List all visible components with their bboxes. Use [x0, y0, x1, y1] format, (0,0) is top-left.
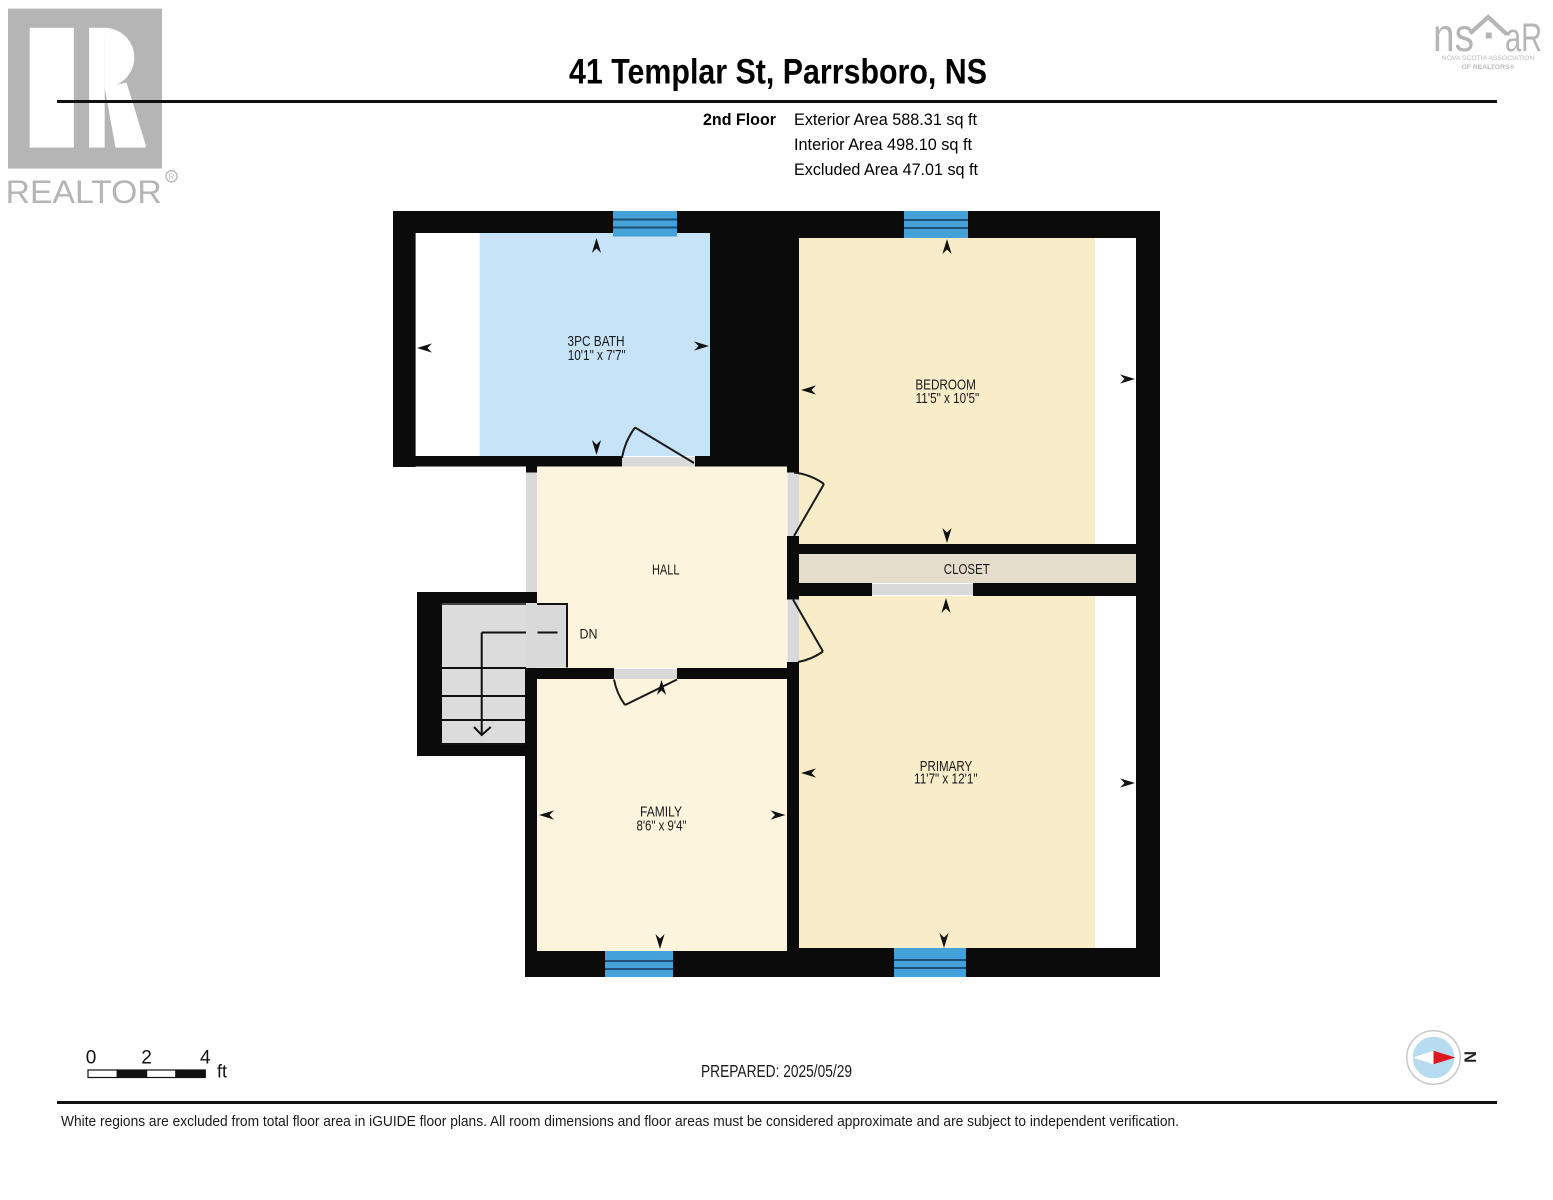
svg-text:ns: ns [1433, 9, 1474, 61]
svg-text:11'5" x 10'5": 11'5" x 10'5" [916, 391, 980, 407]
svg-text:R: R [169, 172, 175, 181]
svg-text:N: N [1461, 1051, 1479, 1063]
svg-text:2: 2 [141, 1048, 152, 1069]
svg-text:NOVA SCOTIA ASSOCIATION: NOVA SCOTIA ASSOCIATION [1442, 55, 1535, 62]
svg-text:aR: aR [1505, 16, 1542, 60]
svg-text:PREPARED: 2025/05/29: PREPARED: 2025/05/29 [701, 1061, 852, 1081]
svg-text:DN: DN [580, 626, 598, 641]
svg-text:2nd Floor: 2nd Floor [703, 110, 776, 129]
svg-text:Excluded Area 47.01 sq ft: Excluded Area 47.01 sq ft [794, 160, 978, 179]
svg-text:0: 0 [86, 1048, 97, 1069]
svg-text:Interior Area 498.10 sq ft: Interior Area 498.10 sq ft [794, 135, 972, 154]
svg-text:OF REALTORS®: OF REALTORS® [1461, 63, 1514, 71]
svg-text:ft: ft [217, 1062, 227, 1082]
svg-text:41 Templar St, Parrsboro, NS: 41 Templar St, Parrsboro, NS [569, 53, 987, 92]
svg-text:White regions are excluded fro: White regions are excluded from total fl… [61, 1114, 1179, 1130]
svg-text:Exterior Area 588.31 sq ft: Exterior Area 588.31 sq ft [794, 110, 977, 129]
svg-text:10'1" x 7'7": 10'1" x 7'7" [568, 348, 626, 364]
svg-text:HALL: HALL [652, 563, 680, 579]
svg-text:11'7" x 12'1": 11'7" x 12'1" [914, 771, 978, 787]
svg-text:8'6" x 9'4": 8'6" x 9'4" [637, 819, 687, 835]
svg-text:CLOSET: CLOSET [944, 562, 990, 578]
svg-text:REALTOR: REALTOR [6, 174, 162, 210]
svg-text:4: 4 [200, 1048, 211, 1069]
